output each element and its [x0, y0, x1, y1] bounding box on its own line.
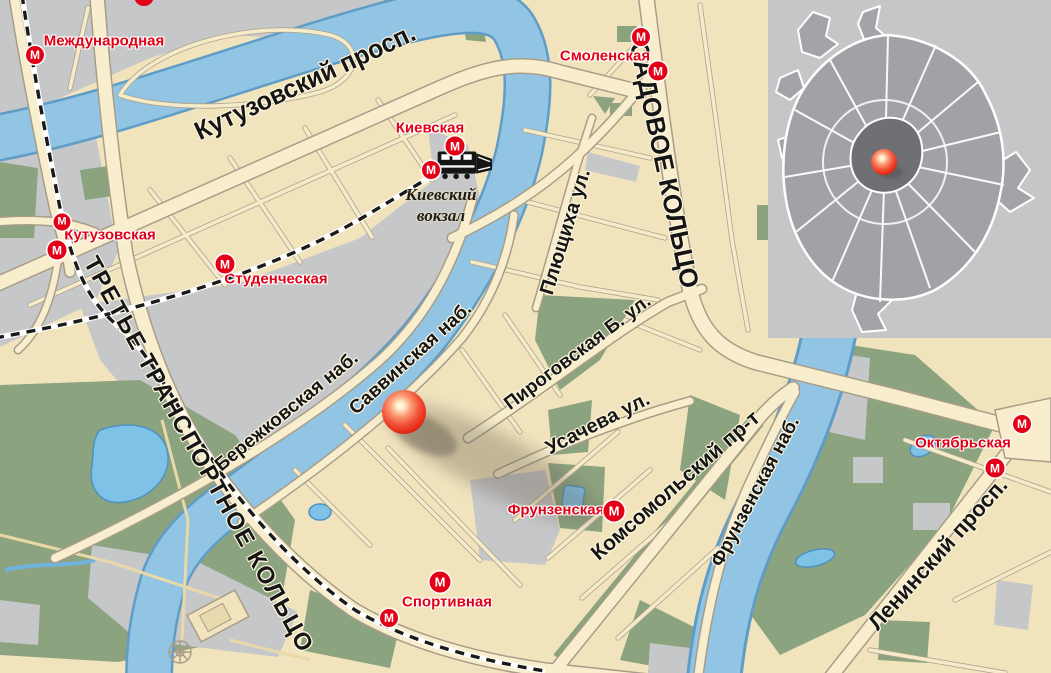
- metro-m: М: [636, 31, 646, 43]
- metro-icon: М: [380, 609, 398, 627]
- metro-m: М: [220, 258, 230, 270]
- fountain-icon: [169, 641, 191, 663]
- metro-m: М: [653, 65, 663, 77]
- metro-m: М: [30, 49, 40, 61]
- metro-icon: М: [54, 214, 71, 231]
- metro-m: М: [384, 612, 394, 624]
- metro-m: М: [57, 217, 66, 228]
- metro-icon: М: [604, 501, 625, 522]
- metro-icon: М: [1013, 415, 1031, 433]
- metro-m: М: [52, 244, 62, 256]
- metro-icon: М: [26, 46, 44, 64]
- metro-icon: М: [632, 28, 650, 46]
- inset-overview-map: [768, 0, 1051, 338]
- metro-icon: М: [649, 62, 668, 81]
- metro-icon: М: [216, 255, 235, 274]
- metro-icon: М: [422, 161, 440, 179]
- metro-m: М: [450, 140, 460, 152]
- metro-icon: М: [430, 572, 451, 593]
- metro-m: М: [990, 462, 1000, 474]
- metro-m: М: [1017, 418, 1027, 430]
- metro-icon: М: [986, 459, 1005, 478]
- inset-canvas: [768, 0, 1051, 338]
- moscow-map: Кутузовский просп. САДОВОЕ КОЛЬЦО Плющих…: [0, 0, 1051, 673]
- metro-m: М: [426, 164, 436, 176]
- metro-m: М: [435, 576, 446, 589]
- metro-m: М: [609, 505, 620, 518]
- train-icon: [438, 152, 492, 180]
- metro-icon: М: [48, 241, 67, 260]
- metro-icon: М: [446, 137, 465, 156]
